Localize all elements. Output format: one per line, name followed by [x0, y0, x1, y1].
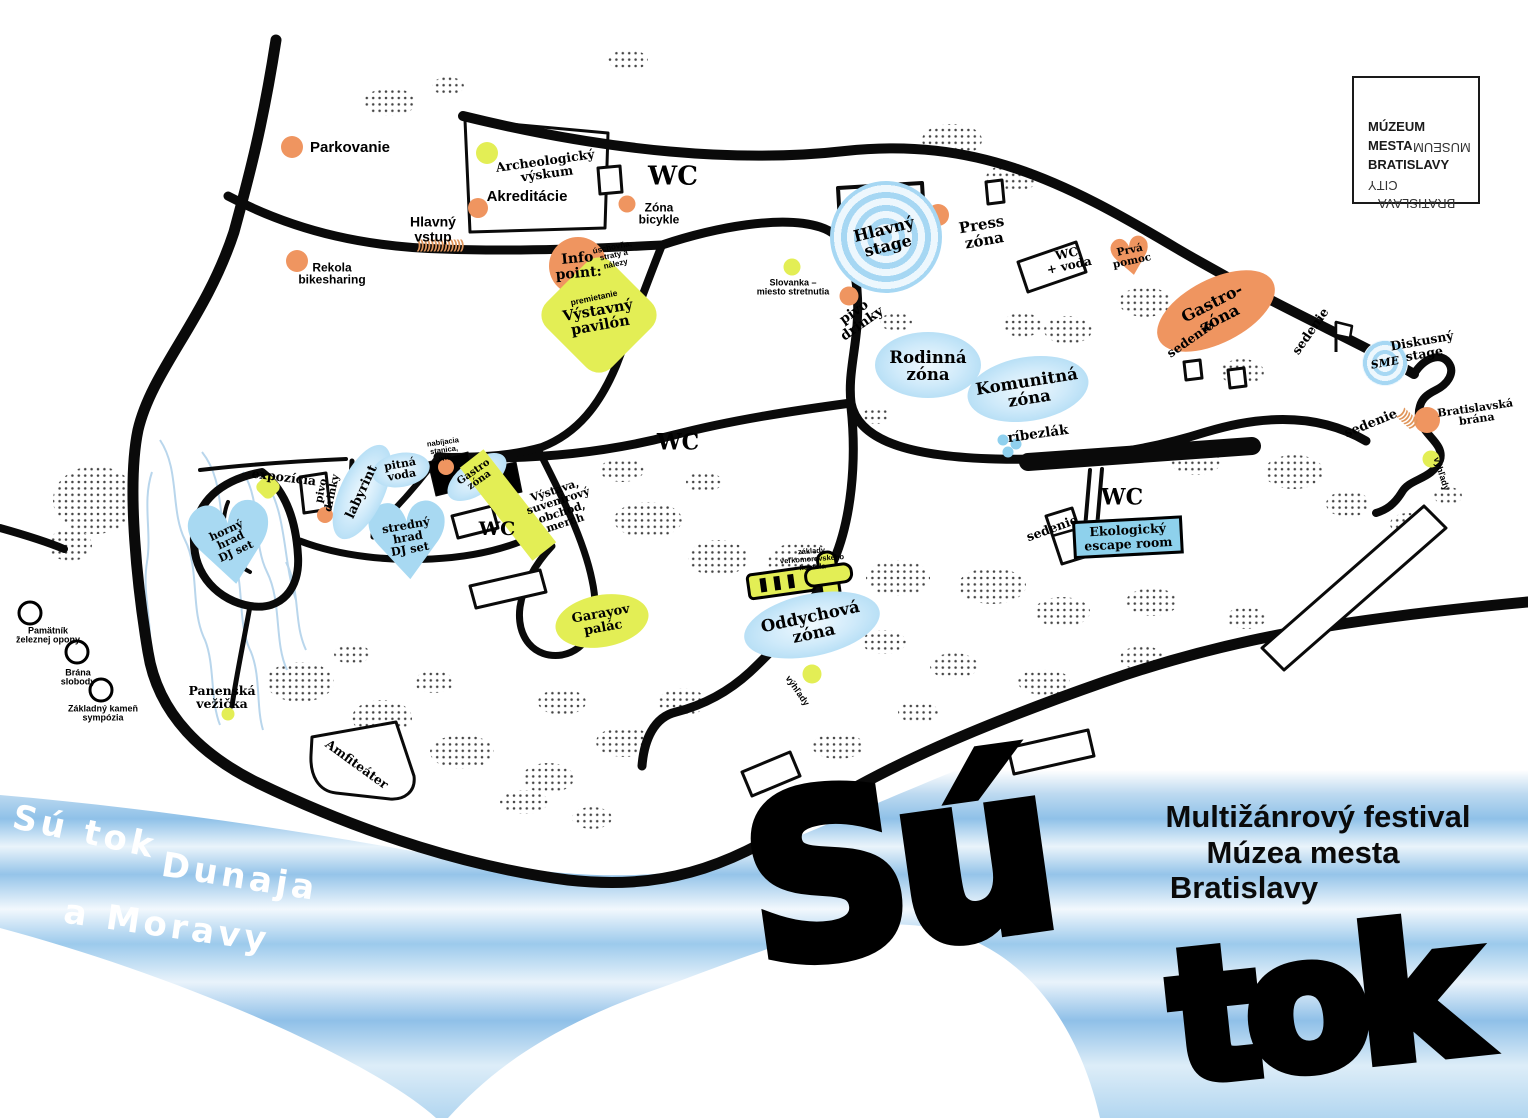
logo-line3b: CITY [1368, 175, 1398, 194]
ribezlak-dot [1003, 447, 1014, 458]
label-wc-center: WC [657, 432, 699, 455]
marker-zona-bicykle [619, 196, 636, 213]
label-zaklady: základy veľkomoravského kostola [779, 545, 845, 573]
subtitle-line3: Bratislavy [1170, 870, 1318, 906]
label-nabijacia: nabíjacia stanica, wifi [426, 436, 461, 464]
label-brana-slobody: Brána slobody [61, 669, 96, 688]
logo-line2a: MESTA [1368, 138, 1413, 153]
festival-map: ♥ ♥ ♥ )))))))))))))) )))))) Sú tok Sú to… [0, 0, 1528, 1118]
logo-line2b: MUSEUM [1413, 137, 1471, 156]
road-to-castle [438, 245, 662, 457]
label-slovanka: Slovanka – miesto stretnutia [757, 279, 830, 298]
label-wc-vychod: WC [1101, 487, 1143, 510]
label-akreditacie: Akreditácie [487, 189, 568, 205]
logo-line3a: BRATISLAVY [1368, 157, 1449, 172]
label-panenska: Panenská vežička [188, 684, 255, 710]
road-castle-ridge [438, 403, 851, 458]
label-rekola: Rekola bikesharing [298, 262, 365, 287]
marker-slovanka [784, 259, 801, 276]
museum-logo: MÚZEUM MESTAMUSEUM BRATISLAVYCITY BRATIS… [1352, 76, 1480, 204]
label-wc-hrad: WC [479, 520, 515, 540]
subtitle-line2: Múzea mesta [1207, 835, 1400, 871]
label-pamatnik: Pamätník železnej opony [16, 627, 80, 646]
label-hlavny-vstup: Hlavný vstup [410, 214, 456, 243]
wordmark-su: Sú [735, 758, 1055, 978]
logo-line4: BRATISLAVA [1368, 193, 1478, 212]
ekologicky-escape-room: Ekologický escape room [1072, 515, 1184, 558]
subtitle-line1: Multižánrový festival [1166, 799, 1471, 835]
logo-line1: MÚZEUM [1368, 119, 1425, 134]
marker-vyhlady-b [803, 665, 822, 684]
marker-parkovanie [281, 136, 303, 158]
label-wc-top: WC [648, 163, 698, 190]
label-parkovanie: Parkovanie [310, 140, 390, 156]
label-rodinna-zona: Rodinná zóna [889, 349, 966, 383]
marker-akreditacie [468, 198, 488, 218]
label-zakladny-kamen: Základný kameň sympózia [68, 705, 138, 724]
label-zona-bicykle: Zóna bicykle [639, 202, 680, 227]
marker-pamatnik [18, 601, 43, 626]
wordmark-tok: tok [1165, 918, 1472, 1092]
road-east [662, 222, 1366, 459]
